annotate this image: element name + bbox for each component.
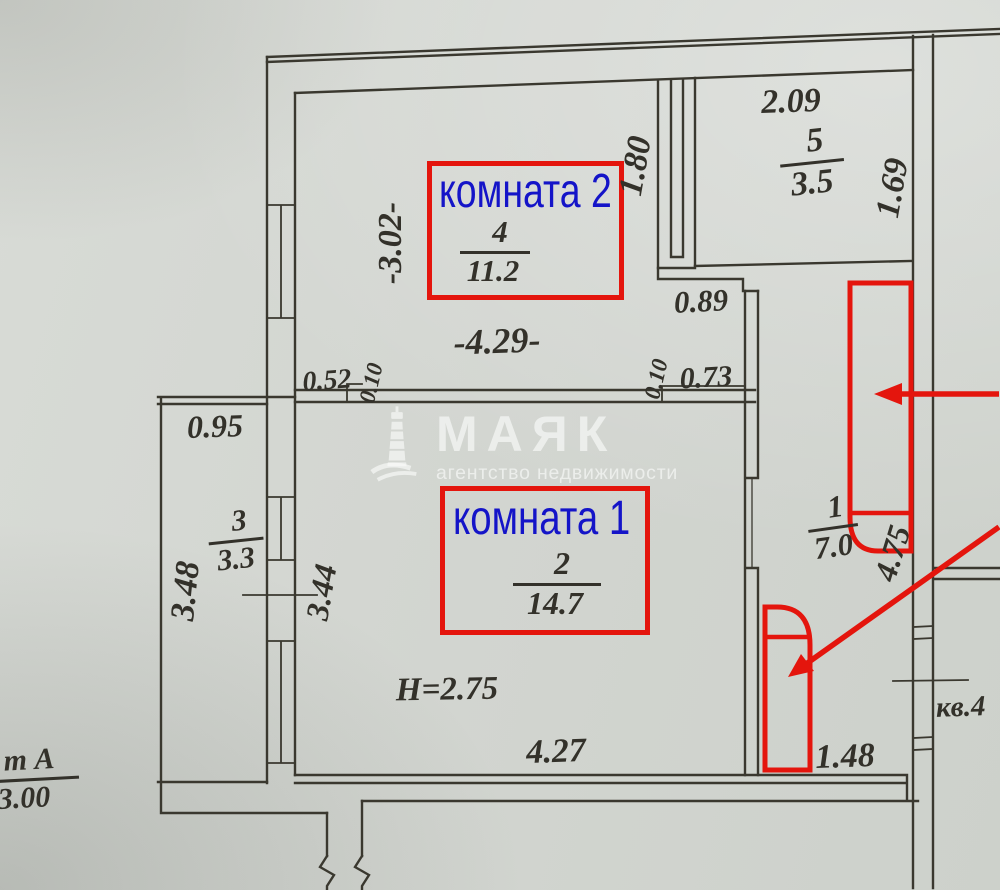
- agency-watermark: МАЯК агентство недвижимости: [368, 405, 678, 485]
- red-arrow-horizontal: [874, 383, 999, 405]
- room3-area: 3.3: [216, 541, 257, 576]
- room5-number: 5: [804, 122, 825, 159]
- dim-0-73: 0.73: [679, 362, 733, 395]
- room5-area: 3.5: [789, 163, 835, 203]
- dim-1-48: 1.48: [815, 739, 876, 775]
- room2-number-fraction: 4 11.2: [460, 216, 530, 287]
- dim-4-29: -4.29-: [453, 321, 541, 360]
- room2-area: 11.2: [467, 255, 520, 288]
- room1-highlight-box: комната 1 2 14.7: [440, 486, 650, 635]
- room3-number: 3: [230, 504, 248, 537]
- apartment-number-label: кв.4: [936, 692, 986, 723]
- room1-number: 2: [554, 547, 570, 581]
- hall-number-fraction: 1 7.0: [803, 488, 862, 565]
- room1-number-fraction: 2 14.7: [513, 547, 601, 620]
- watermark-name: МАЯК: [436, 409, 616, 459]
- dim-3-02: -3.02-: [374, 202, 408, 284]
- lighthouse-icon: [368, 405, 426, 485]
- litera-bottom: 3.00: [0, 781, 51, 815]
- room2-title: комната 2: [439, 166, 612, 219]
- hall-number: 1: [825, 490, 845, 524]
- litera-top: т А: [3, 743, 55, 777]
- litera-fraction: т А 3.00: [0, 742, 81, 817]
- room2-highlight-box: комната 2 4 11.2: [427, 161, 624, 300]
- room1-title: комната 1: [453, 493, 630, 546]
- ceiling-height-label: H=2.75: [396, 673, 499, 708]
- red-highlight-small: [765, 607, 810, 770]
- floorplan-scan: МАЯК агентство недвижимости комната 2 4 …: [0, 0, 1000, 890]
- dim-3-48: 3.48: [166, 560, 206, 623]
- dim-0-95: 0.95: [186, 409, 243, 443]
- dim-2-09: 2.09: [761, 84, 822, 120]
- dim-0-89: 0.89: [673, 284, 729, 318]
- room5-number-fraction: 5 3.5: [776, 120, 848, 204]
- dim-0-52: 0.52: [302, 365, 353, 396]
- room2-number: 4: [492, 216, 508, 249]
- hall-area: 7.0: [812, 528, 855, 566]
- dim-3-44: 3.44: [300, 562, 341, 623]
- window-marks: [243, 205, 317, 763]
- room1-area: 14.7: [527, 587, 583, 621]
- dim-4-27: 4.27: [526, 734, 587, 770]
- room3-number-fraction: 3 3.3: [205, 503, 267, 577]
- watermark-tagline: агентство недвижимости: [436, 462, 678, 485]
